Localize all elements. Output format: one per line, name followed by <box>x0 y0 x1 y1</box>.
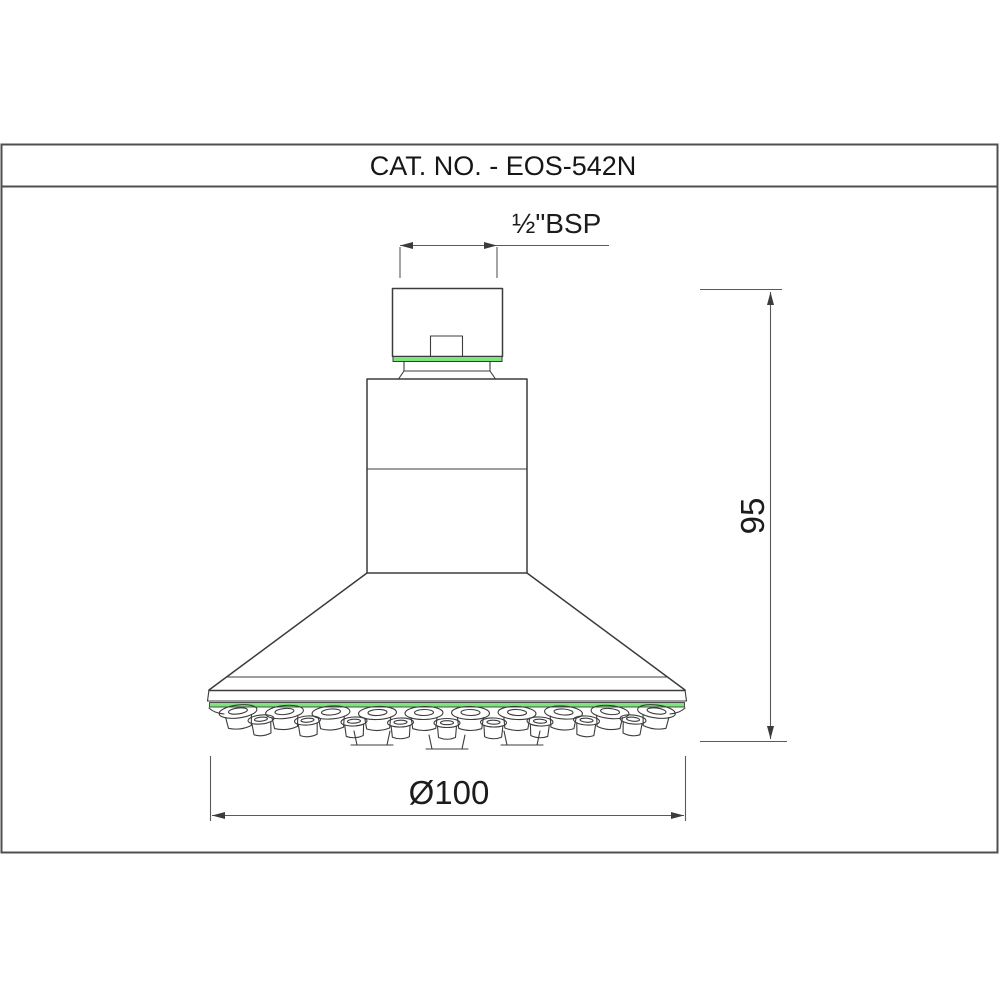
inlet-seal-band <box>393 357 502 362</box>
sheet-border <box>2 145 998 853</box>
catalog-number-label: CAT. NO. - EOS-542N <box>370 151 637 181</box>
title-block: CAT. NO. - EOS-542N <box>2 145 998 853</box>
height-value-label: 95 <box>734 498 771 535</box>
diameter-value-label: Ø100 <box>409 774 490 811</box>
thread-size-label: ½"BSP <box>512 208 601 239</box>
technical-drawing-sheet: CAT. NO. - EOS-542N <box>0 0 1000 1000</box>
